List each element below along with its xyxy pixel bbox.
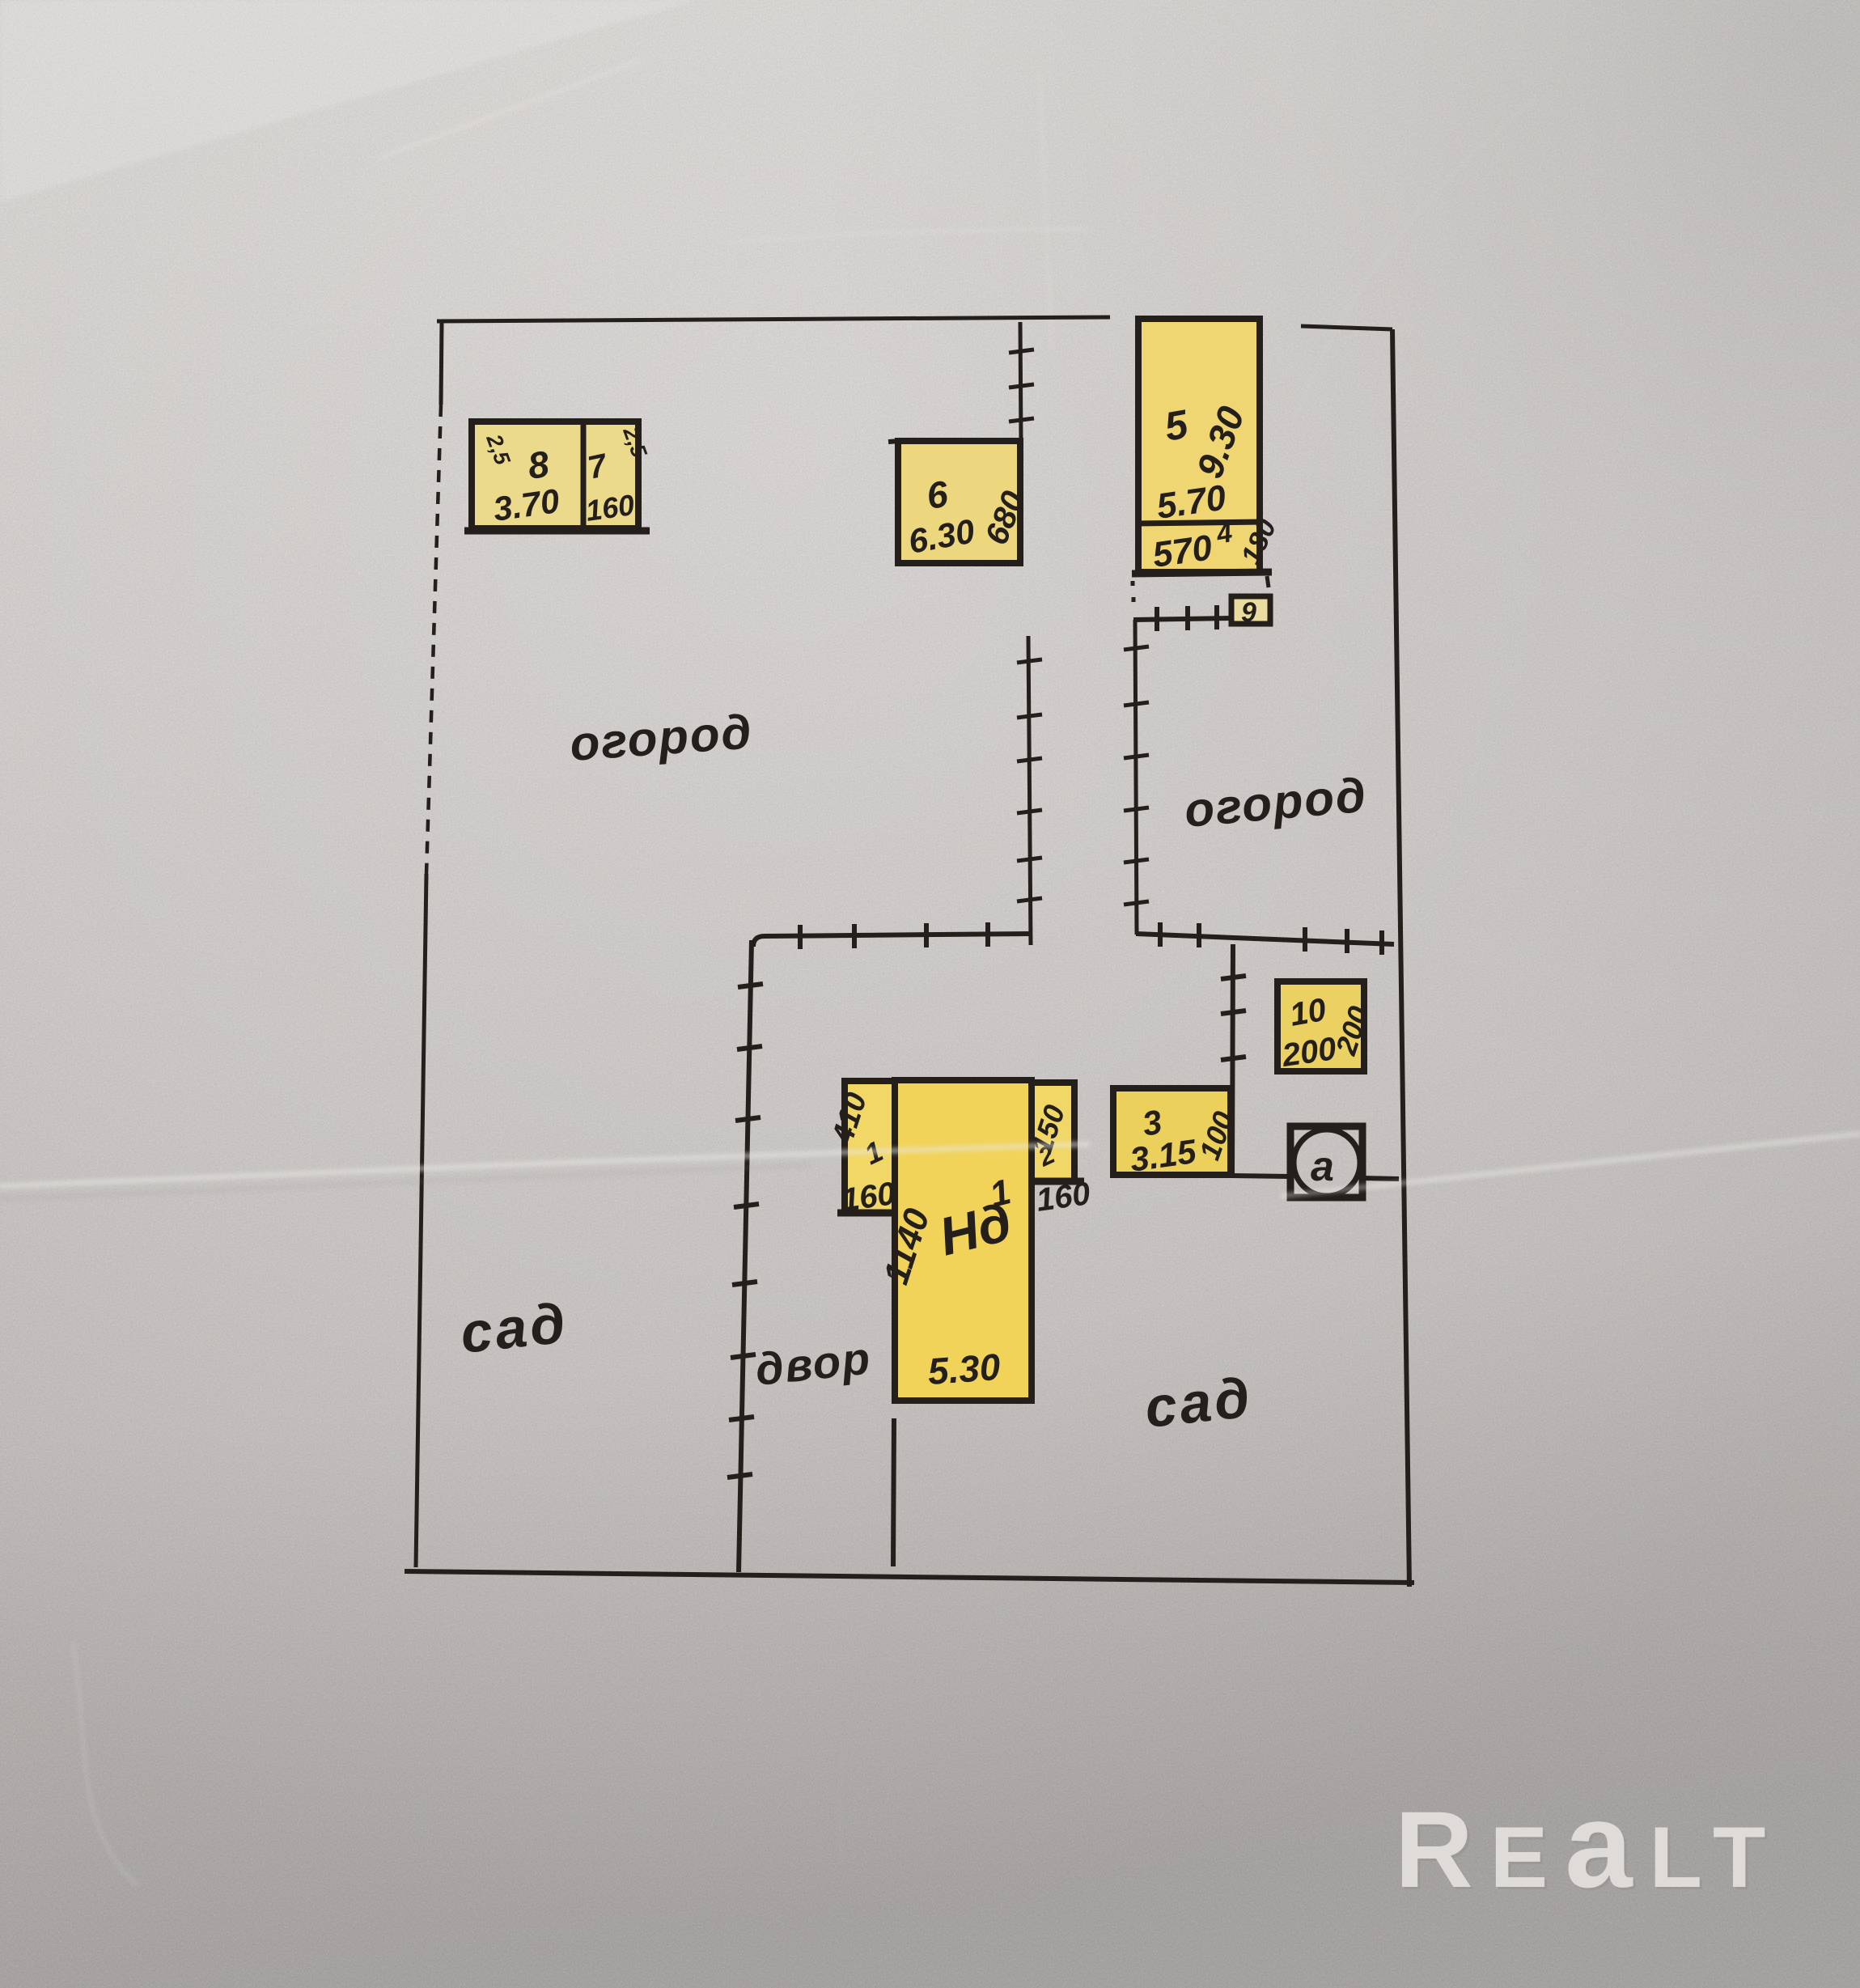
svg-text:200: 200 [1279,1031,1338,1074]
svg-text:9: 9 [1241,597,1256,628]
svg-text:10: 10 [1287,992,1328,1033]
svg-text:160: 160 [1034,1176,1092,1219]
svg-text:a: a [1311,1143,1334,1190]
svg-text:570: 570 [1150,528,1215,575]
svg-text:сад: сад [457,1291,571,1364]
svg-text:5.30: 5.30 [926,1346,1002,1392]
svg-text:160: 160 [839,1176,897,1219]
svg-text:сад: сад [1142,1365,1256,1439]
svg-text:160: 160 [583,488,636,528]
